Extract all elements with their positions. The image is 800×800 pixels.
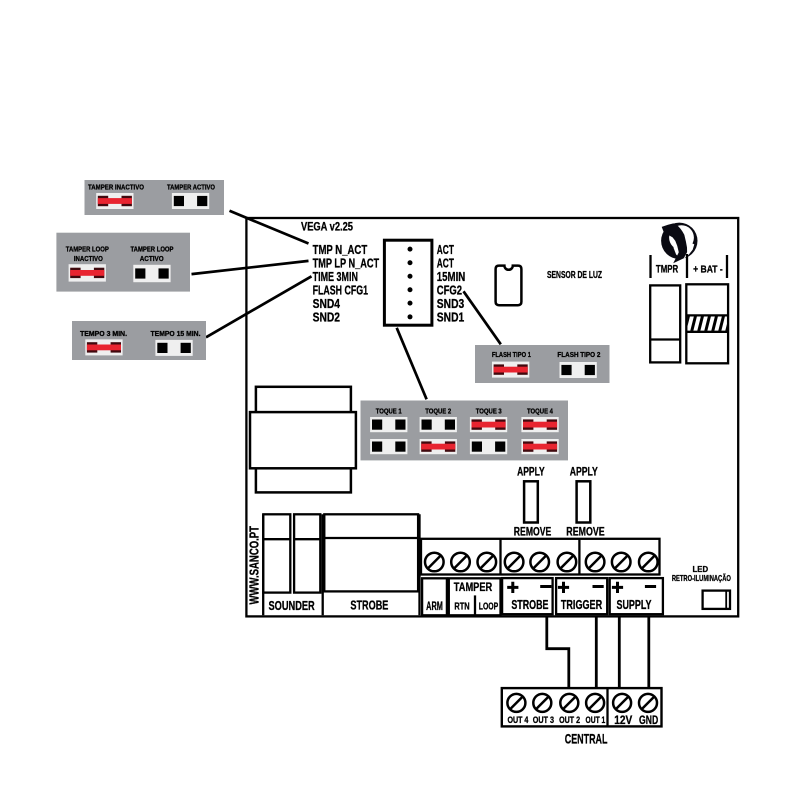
svg-text:REMOVE: REMOVE — [514, 525, 552, 539]
svg-text:APPLY: APPLY — [517, 464, 545, 478]
svg-text:SND4: SND4 — [313, 296, 341, 311]
svg-text:WWW.SANCO.PT: WWW.SANCO.PT — [247, 526, 261, 605]
svg-text:SND2: SND2 — [313, 310, 340, 325]
svg-text:SENSOR DE LUZ: SENSOR DE LUZ — [547, 270, 602, 281]
svg-text:TEMPO 3 MIN.: TEMPO 3 MIN. — [80, 329, 127, 338]
svg-text:TAMPER LOOP: TAMPER LOOP — [66, 244, 109, 253]
svg-text:TAMPER: TAMPER — [454, 580, 493, 594]
svg-text:OUT 2: OUT 2 — [559, 715, 580, 726]
svg-text:FLASH TIPO 1: FLASH TIPO 1 — [492, 350, 531, 359]
svg-text:TOQUE 3: TOQUE 3 — [476, 407, 502, 416]
svg-text:TOQUE 2: TOQUE 2 — [425, 407, 451, 416]
svg-text:INACTIVO: INACTIVO — [74, 254, 103, 263]
svg-text:STROBE: STROBE — [350, 597, 388, 612]
svg-text:ACTIVO: ACTIVO — [140, 254, 164, 263]
svg-text:SUPPLY: SUPPLY — [617, 597, 652, 612]
svg-text:GND: GND — [639, 713, 658, 727]
svg-text:ARM: ARM — [426, 599, 443, 613]
svg-text:TEMPO 15 MIN.: TEMPO 15 MIN. — [151, 329, 201, 338]
svg-text:TAMPER INACTIVO: TAMPER INACTIVO — [88, 183, 144, 192]
svg-text:OUT 1: OUT 1 — [586, 715, 606, 726]
svg-text:VEGA v2.25: VEGA v2.25 — [301, 219, 353, 233]
svg-text:SOUNDER: SOUNDER — [268, 599, 314, 613]
svg-text:STROBE: STROBE — [511, 597, 548, 612]
svg-text:TOQUE 1: TOQUE 1 — [376, 407, 402, 416]
svg-text:APPLY: APPLY — [570, 464, 598, 478]
svg-text:OUT 3: OUT 3 — [533, 715, 554, 726]
svg-text:TAMPER LOOP: TAMPER LOOP — [131, 244, 174, 253]
svg-text:+ BAT -: + BAT - — [693, 263, 723, 275]
svg-text:SND1: SND1 — [437, 310, 464, 325]
svg-text:OUT 4: OUT 4 — [507, 715, 528, 726]
svg-text:FLASH TIPO 2: FLASH TIPO 2 — [557, 350, 600, 359]
svg-text:LOOP: LOOP — [479, 601, 499, 613]
svg-text:CENTRAL: CENTRAL — [565, 730, 608, 746]
svg-text:REMOVE: REMOVE — [566, 525, 604, 539]
svg-text:TOQUE 4: TOQUE 4 — [527, 407, 554, 416]
svg-text:SND3: SND3 — [437, 296, 464, 311]
svg-text:TAMPER ACTIVO: TAMPER ACTIVO — [167, 183, 215, 192]
svg-text:TMPR: TMPR — [656, 264, 678, 276]
svg-text:RTN: RTN — [454, 601, 469, 613]
svg-text:TRIGGER: TRIGGER — [561, 597, 603, 612]
svg-text:RETRO-ILUMINAÇÃO: RETRO-ILUMINAÇÃO — [672, 573, 731, 583]
svg-text:12V: 12V — [614, 713, 632, 727]
